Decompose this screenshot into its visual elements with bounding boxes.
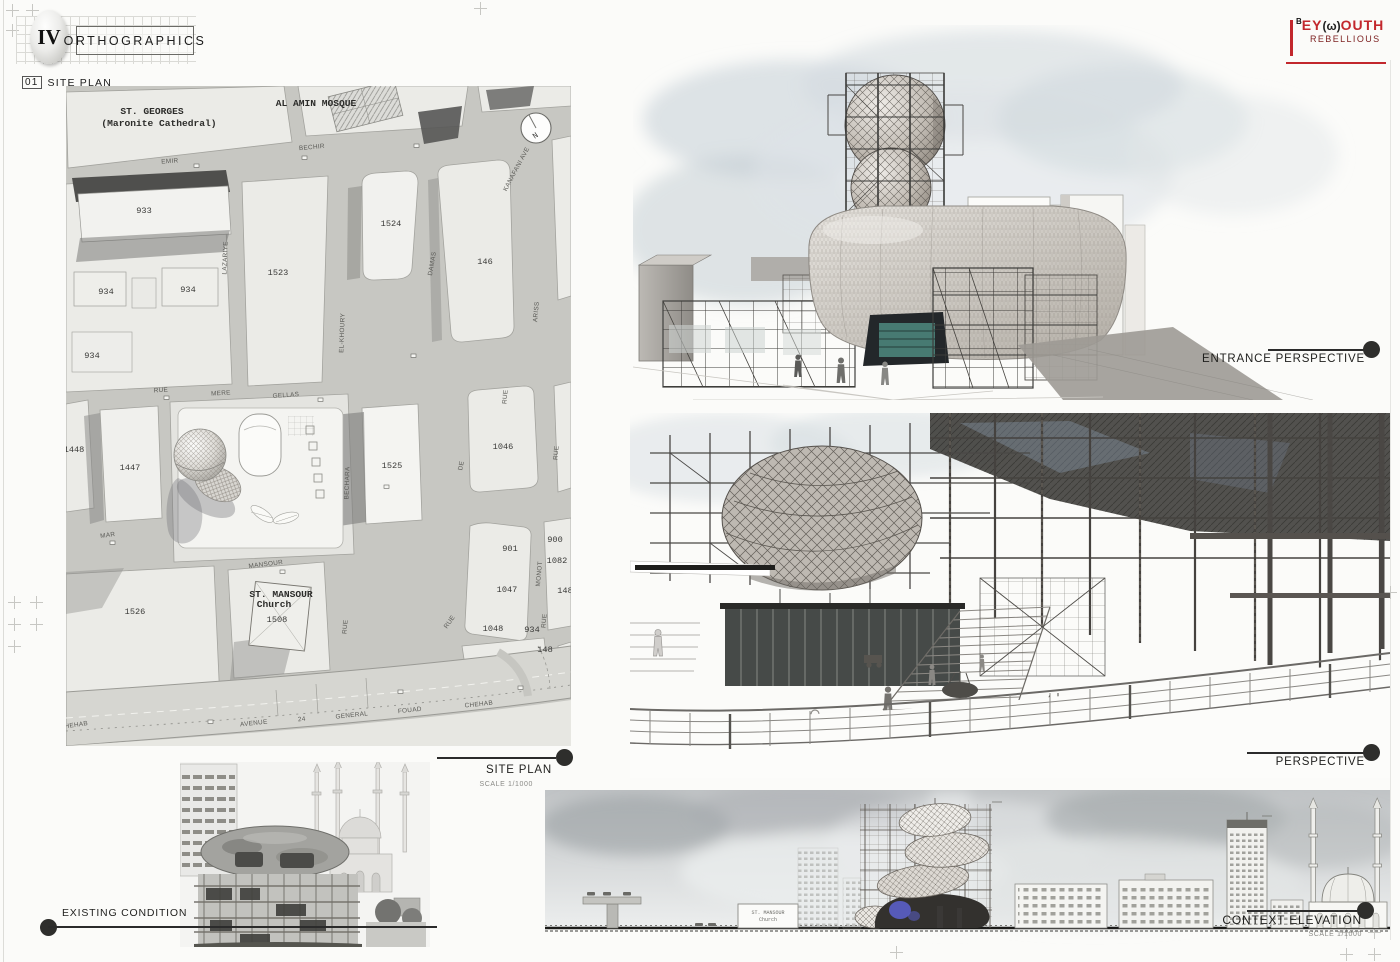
section-numeral: IV [37, 25, 60, 50]
parcel: 934 [524, 625, 539, 635]
presentation-board: IV ORTHOGRAPHICS 01 SITE PLAN BEY(ω)OUTH… [0, 0, 1400, 962]
church-sublabel: Church [759, 917, 777, 923]
sheet-title-box: ORTHOGRAPHICS [76, 26, 194, 55]
parcel: 934 [84, 351, 99, 361]
parcel: 1525 [382, 461, 403, 471]
subsection-number: 01 [22, 76, 42, 89]
leader-dot [1363, 341, 1380, 358]
leader-dot [1363, 744, 1380, 761]
street-label: MERE [211, 389, 231, 397]
blue-accent [889, 901, 911, 919]
stair-scaffold [980, 578, 1105, 676]
parcel: 148 [557, 586, 571, 596]
leader-line [1247, 910, 1359, 912]
north-compass: N [521, 113, 551, 143]
caption-entrance-perspective: ENTRANCE PERSPECTIVE [1190, 353, 1365, 365]
parcel: 1046 [493, 442, 514, 452]
church-label: ST. MANSOUR [751, 910, 784, 916]
parcel: 1526 [125, 607, 146, 617]
entrance-perspective-render [633, 25, 1388, 400]
parcel: 933 [136, 206, 151, 216]
caption-existing-condition: EXISTING CONDITION [62, 907, 302, 919]
caption-site-plan-scale: SCALE 1/1000 [420, 781, 533, 788]
parcel: 1048 [483, 624, 504, 634]
registration-mark [8, 640, 21, 653]
parcel: 146 [477, 257, 492, 267]
leader-line [1268, 349, 1365, 351]
leader-line [437, 757, 556, 759]
registration-mark [474, 2, 487, 15]
label-st-georges-sub: (Maronite Cathedral) [101, 118, 216, 129]
street-label: EL-KHOURY [338, 312, 346, 353]
site-plan-map: N ST. GEORGES (Maronite Cathedral) AL AM… [66, 86, 571, 746]
parcel: 1448 [66, 445, 84, 455]
street-label: 24 [298, 716, 307, 724]
parcel: 900 [547, 535, 562, 545]
street-label: BECHARA [343, 466, 351, 500]
leader-dot [556, 749, 573, 766]
church-elevation: ST. MANSOUR Church [738, 904, 798, 928]
existing-condition-photo [180, 762, 430, 947]
leader-line [1247, 752, 1365, 754]
perspective-render [630, 413, 1390, 778]
caption-context-elevation-scale: SCALE 1/1000 [1240, 931, 1362, 938]
registration-mark [30, 596, 43, 609]
parcel: 1508 [267, 615, 288, 625]
parcel: 934 [180, 285, 195, 295]
street-label: RUE [153, 387, 168, 395]
street-label: EMIR [161, 157, 179, 165]
street-label: RUE [540, 613, 548, 628]
parcel: 901 [502, 544, 517, 554]
label-st-georges: ST. GEORGES [120, 106, 184, 117]
egg-ruin [194, 826, 362, 947]
suspended-pod [722, 446, 922, 613]
label-al-amin: AL AMIN MOSQUE [276, 98, 357, 109]
sheet-edge-line [1390, 60, 1391, 940]
leader-line [48, 926, 437, 928]
parcel: 1047 [497, 585, 518, 595]
proposed-tower [855, 798, 1002, 928]
street-label: RUE [501, 389, 509, 404]
parcel: 1523 [268, 268, 289, 278]
registration-mark [8, 618, 21, 631]
street-label: LAZARIYE [221, 241, 229, 275]
parcel: 1447 [120, 463, 141, 473]
parcel: 1082 [547, 556, 568, 566]
label-st-mansour-sub: Church [257, 599, 292, 610]
sheet-edge-line [3, 0, 4, 962]
project-site [166, 408, 343, 548]
parcel: 934 [98, 287, 113, 297]
section-number-egg: IV [30, 10, 68, 64]
caption-site-plan: SITE PLAN [420, 764, 552, 776]
street-label: RUE [341, 619, 349, 634]
registration-mark [8, 596, 21, 609]
sheet-title: ORTHOGRAPHICS [64, 34, 207, 48]
parcel: 1524 [381, 219, 402, 229]
registration-mark [30, 618, 43, 631]
caption-perspective: PERSPECTIVE [1210, 756, 1365, 768]
parcel: 148 [537, 645, 552, 655]
teal-interior [879, 323, 935, 357]
street-label: RUE [552, 445, 560, 460]
caption-context-elevation: CONTEXT ELEVATION [1150, 913, 1362, 927]
